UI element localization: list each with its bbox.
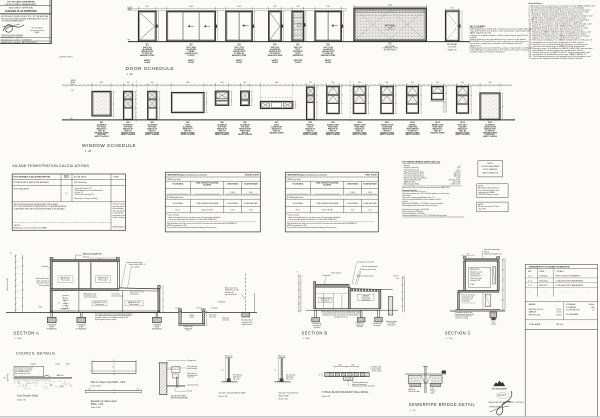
- svg-text:19.60: 19.60: [231, 192, 235, 194]
- svg-text:DOORS: DOORS: [448, 47, 456, 49]
- svg-text:SPEC BY: SPEC BY: [356, 130, 364, 132]
- svg-text:DATE: DATE: [540, 270, 545, 273]
- svg-text:Block Wall: Block Wall: [279, 395, 290, 397]
- svg-text:TOP HUNG: TOP HUNG: [124, 127, 133, 129]
- svg-text:Scale 1:20: Scale 1:20: [322, 396, 330, 398]
- svg-text:certified under or member of t: certified under or member of thereof: [470, 51, 506, 54]
- svg-text:2.1: 2.1: [274, 369, 276, 371]
- svg-text:Scale 1:50: Scale 1:50: [17, 400, 26, 402]
- svg-text:W10: W10: [357, 122, 362, 124]
- svg-text:RECEIVED DEVELOPMENT CONTROL: RECEIVED DEVELOPMENT CONTROL: [489, 402, 526, 404]
- svg-text:GLASS: GLASS: [236, 61, 243, 64]
- svg-text:GLASS: GLASS: [295, 61, 302, 64]
- svg-text:— — — — — —: — — — — — —: [558, 291, 570, 293]
- svg-text:ENV: No Building: ENV: No Building: [74, 182, 87, 184]
- svg-text:WINDOW SCHEDULE: WINDOW SCHEDULE: [82, 143, 136, 148]
- svg-text:DOOR: DOOR: [388, 28, 394, 30]
- svg-text:SPEC BY: SPEC BY: [459, 130, 467, 132]
- svg-text:HARDWOOD: HARDWOOD: [293, 54, 304, 57]
- svg-text:Sunningdale: Sunningdale: [492, 387, 508, 391]
- svg-text:pad: pad: [492, 322, 495, 324]
- svg-text:Plan of rollover kerb DWG - CK: Plan of rollover kerb DWG - CK3: [91, 381, 126, 384]
- svg-text:FIRST FLOOR: FIRST FLOOR: [365, 174, 377, 176]
- svg-text:CONCRETE: CONCRETE: [153, 325, 162, 327]
- svg-text:ceiling fixing: ceiling fixing: [130, 294, 138, 296]
- svg-text:150: 150: [4, 377, 7, 379]
- svg-text:OTHER: OTHER: [113, 177, 120, 179]
- svg-text:tempered or toughened glass sh: tempered or toughened glass shall be sho…: [470, 34, 529, 37]
- svg-text:Beacon line: Beacon line: [278, 355, 286, 357]
- svg-text:Min 750 found: Min 750 found: [233, 375, 242, 377]
- svg-text:TOP HUNG: TOP HUNG: [241, 127, 250, 129]
- svg-text:— —: — —: [528, 291, 532, 293]
- svg-text:BEDROOM 3: BEDROOM 3: [98, 277, 108, 279]
- svg-text:FENESTRATION (glass and frame: FENESTRATION (glass and frame per room/z…: [287, 173, 327, 176]
- svg-text:DETAILS: DETAILS: [557, 270, 565, 273]
- svg-text:gulley conn: gulley conn: [356, 324, 364, 326]
- svg-text:90: 90: [319, 374, 321, 376]
- svg-text:11.41: 11.41: [249, 210, 253, 212]
- svg-text:450: 450: [151, 82, 154, 84]
- svg-text:SPEC BY: SPEC BY: [329, 130, 337, 132]
- svg-text:04/11/2021: 04/11/2021: [539, 285, 548, 287]
- svg-text:SPEC BY: SPEC BY: [434, 130, 442, 132]
- svg-text:190 block walls: 190 block walls: [372, 366, 382, 368]
- svg-text:TOP HUNG: TOP HUNG: [148, 127, 157, 129]
- svg-text:above FFL.: above FFL.: [478, 208, 487, 210]
- svg-text:900: 900: [489, 82, 492, 84]
- svg-text:271m²: 271m²: [557, 308, 562, 311]
- svg-text:EXTERIOR WALLS (NBR) (PERF. AS: EXTERIOR WALLS (NBR) (PERF. ASSUMED): [14, 181, 50, 184]
- svg-text:12/10/2021: 12/10/2021: [539, 280, 548, 282]
- svg-text:MANUFACTURER: MANUFACTURER: [321, 54, 336, 57]
- svg-text:2700: 2700: [326, 6, 330, 8]
- svg-text:900: 900: [100, 82, 103, 84]
- svg-text:BUILDING PLAN APPROVED: BUILDING PLAN APPROVED: [5, 10, 37, 13]
- svg-text:ALPINE TINTS: ALPINE TINTS: [60, 56, 74, 59]
- svg-text:450: 450: [127, 82, 130, 84]
- svg-text:1 : 20: 1 : 20: [410, 410, 416, 412]
- svg-text:WINDOW TO: WINDOW TO: [272, 128, 283, 130]
- svg-text:GLASS: GLASS: [325, 61, 332, 64]
- svg-text:50x50 conc slabs: 50x50 conc slabs: [408, 391, 420, 393]
- svg-text:GROUND FLOOR: GROUND FLOOR: [93, 302, 106, 304]
- svg-text:SPEC BY: SPEC BY: [124, 130, 132, 132]
- svg-text:WINDOW TO: WINDOW TO: [123, 128, 134, 130]
- svg-text:40 cube: 40 cube: [175, 307, 180, 309]
- svg-text:.27: .27: [592, 309, 594, 311]
- svg-text:100Ø uPVC @ 1:60: 100Ø uPVC @ 1:60: [225, 290, 239, 292]
- svg-text:WINDOW TO: WINDOW TO: [217, 128, 228, 130]
- svg-text:Ceiling: 40 R-value 1.35: Ceiling: 40 R-value 1.35: [75, 188, 92, 190]
- svg-text:SECTION C: SECTION C: [445, 331, 471, 336]
- svg-text:Section Through Pre: Section Through Pre: [279, 392, 300, 395]
- svg-text:FENESTRATION (glass and frame: FENESTRATION (glass and frame per room/z…: [167, 173, 207, 176]
- svg-text:8.5: 8.5: [10, 252, 12, 254]
- svg-text:1500 deep: 1500 deep: [222, 318, 229, 320]
- svg-text:FLOOR FACTOR: FLOOR FACTOR: [566, 308, 580, 311]
- svg-text:Paving: Paving: [187, 390, 192, 392]
- svg-text:WINDOW TO: WINDOW TO: [433, 128, 444, 130]
- svg-text:2.7: 2.7: [65, 193, 67, 195]
- svg-text:600: 600: [358, 82, 361, 84]
- svg-text:DOOR: DOOR: [127, 7, 133, 9]
- svg-text:Paving: Paving: [484, 251, 489, 253]
- svg-text:CONCRETE: CONCRETE: [47, 325, 56, 327]
- svg-text:all openings: all openings: [462, 301, 470, 303]
- svg-text:high nbs block: high nbs block: [242, 324, 252, 326]
- svg-text:9.50: 9.50: [351, 210, 354, 212]
- svg-text:BELOW: BELOW: [242, 132, 249, 134]
- svg-text:GROUND FLOOR: GROUND FLOOR: [529, 309, 544, 311]
- svg-text:• Annual target (kWh): • Annual target (kWh): [403, 183, 420, 186]
- svg-text:FIXED: FIXED: [274, 125, 280, 127]
- svg-text:SPEC BY: SPEC BY: [307, 130, 315, 132]
- svg-text:24 Jul 2024: 24 Jul 2024: [31, 27, 43, 29]
- svg-text:SPEC BY: SPEC BY: [383, 130, 391, 132]
- svg-text:Scale 1:100: Scale 1:100: [279, 398, 288, 400]
- svg-text:R-value: 3.7: R-value: 3.7: [75, 192, 84, 194]
- svg-text:Application number: BP/2024/0: Application number: BP/2024/00157: [2, 41, 38, 44]
- svg-text:ROOF INSULATION: ROOF INSULATION: [14, 188, 30, 191]
- svg-text:WINDOW TO: WINDOW TO: [97, 128, 108, 130]
- svg-text:WINDOW TO: WINDOW TO: [183, 128, 194, 130]
- svg-text:ROOF ASSEMBLY R-VALUE (PRESCRI: ROOF ASSEMBLY R-VALUE (PRESCRIPTIVE): [14, 176, 51, 179]
- svg-text:STEEL: STEEL: [189, 315, 194, 317]
- svg-text:600: 600: [461, 82, 464, 84]
- svg-text:BEDROOM 2: BEDROOM 2: [61, 277, 71, 279]
- svg-text:Roof line: Roof line: [393, 276, 399, 278]
- svg-text:Road: Road: [66, 363, 70, 365]
- svg-text:TOTAL AREA: TOTAL AREA: [529, 323, 541, 326]
- svg-text:24 OCT: 24 OCT: [498, 395, 507, 397]
- svg-text:1 : 20: 1 : 20: [127, 73, 134, 76]
- svg-text:4500: 4500: [189, 6, 193, 8]
- svg-text:TO SPEC BY: TO SPEC BY: [408, 130, 419, 132]
- svg-text:DEVELOPMENT MANAGEMENT: DEVELOPMENT MANAGEMENT: [5, 3, 37, 6]
- svg-text:1 : 20: 1 : 20: [85, 150, 92, 153]
- svg-text:Scale 1:100: Scale 1:100: [91, 407, 101, 409]
- svg-text:Kerb Section Detail: Kerb Section Detail: [17, 395, 38, 398]
- svg-text:83.0m²: 83.0m²: [557, 313, 563, 316]
- svg-text:Section Through Block Wall: Section Through Block Wall: [219, 392, 246, 395]
- svg-text:1464m²: 1464m²: [589, 303, 595, 306]
- svg-text:450: 450: [244, 82, 247, 84]
- svg-text:STRIP: STRIP: [155, 327, 160, 329]
- svg-text:NOTE:: NOTE:: [478, 185, 484, 187]
- svg-text:1 : 100: 1 : 100: [446, 338, 453, 340]
- svg-text:SPEC BY: SPEC BY: [273, 130, 281, 132]
- svg-text:WINDOW TO: WINDOW TO: [355, 128, 366, 130]
- svg-text:FIXED: FIXED: [185, 125, 191, 127]
- svg-text:R 300: R 300: [470, 284, 474, 286]
- svg-text:CONCRETE: CONCRETE: [77, 325, 86, 327]
- svg-text:27. may not be reproduced with: 27. may not be reproduced without writte…: [529, 57, 584, 60]
- svg-text:21/06/2021: 21/06/2021: [539, 276, 548, 278]
- svg-text:STRIP: STRIP: [49, 327, 54, 329]
- svg-text:LIVING ROOM: LIVING ROOM: [320, 299, 331, 301]
- svg-text:WNDW: WNDW: [71, 80, 77, 82]
- svg-text:sealed vs leakage.: sealed vs leakage.: [113, 217, 126, 219]
- svg-text:— — —: — — —: [541, 291, 547, 293]
- svg-text:WINDOW TO: WINDOW TO: [382, 128, 393, 130]
- svg-text:7.41: 7.41: [368, 210, 371, 212]
- svg-text:1 : 100: 1 : 100: [303, 338, 310, 340]
- svg-text:Beacon line: Beacon line: [225, 355, 233, 357]
- svg-text:Munic sewer conn: Munic sewer conn: [225, 288, 237, 290]
- svg-text:4.48: 4.48: [368, 192, 371, 194]
- svg-text:CLERESTORY: CLERESTORY: [271, 127, 283, 129]
- svg-text:2400: 2400: [339, 365, 342, 367]
- svg-text:W12: W12: [410, 122, 415, 124]
- svg-text:W11: W11: [385, 122, 390, 124]
- svg-text:COVERAGE: COVERAGE: [566, 306, 577, 309]
- svg-text:600: 600: [386, 82, 389, 84]
- svg-text:900: 900: [146, 6, 149, 8]
- svg-text:MUNICIPALITY APPROVAL: MUNICIPALITY APPROVAL: [9, 7, 34, 10]
- svg-text:SECTION A: SECTION A: [13, 330, 39, 335]
- svg-text:— —: — —: [586, 291, 590, 293]
- svg-text:W15: W15: [488, 122, 493, 124]
- svg-text:TOP HUNG: TOP HUNG: [218, 127, 227, 129]
- svg-text:1 : 100: 1 : 100: [14, 338, 21, 340]
- svg-text:0 1.0: 0 1.0: [528, 276, 532, 278]
- svg-text:4.48: 4.48: [249, 192, 252, 194]
- svg-text:GLASS: GLASS: [144, 61, 151, 64]
- svg-text:Paving falls: Paving falls: [323, 275, 331, 277]
- svg-text:FIRST FLOOR: FIRST FLOOR: [529, 314, 541, 316]
- svg-text:W. level: W. level: [197, 307, 203, 309]
- svg-text:Scale 1:100: Scale 1:100: [91, 386, 101, 388]
- svg-text:19.60: 19.60: [351, 192, 355, 194]
- svg-text:SEWERPIPE BRIDGE DETAIL: SEWERPIPE BRIDGE DETAIL: [409, 402, 476, 407]
- svg-text:GROUND FLOOR: GROUND FLOOR: [245, 174, 260, 176]
- svg-text:MANUFACTURER: MANUFACTURER: [232, 54, 247, 57]
- svg-text:2700: 2700: [237, 6, 241, 8]
- svg-text:NOTE:: NOTE:: [478, 204, 484, 206]
- svg-text:600: 600: [221, 82, 224, 84]
- svg-text:0 1.1: 0 1.1: [528, 280, 532, 282]
- svg-text:SPEC BY: SPEC BY: [218, 130, 226, 132]
- svg-text:Demand Controls:: Demand Controls:: [402, 189, 418, 192]
- svg-text:LOW-E REQUIRED: LOW-E REQUIRED: [481, 166, 500, 168]
- svg-text:SLIDING DOOR: SLIDING DOOR: [484, 127, 497, 129]
- svg-text:510: 510: [309, 82, 312, 84]
- svg-text:FFL: FFL: [71, 90, 74, 92]
- svg-text:1510: 1510: [466, 253, 469, 255]
- svg-text:1,368 / 2,737: 1,368 / 2,737: [450, 184, 460, 186]
- svg-text:1500: 1500: [275, 82, 279, 84]
- svg-text:FFL 0.00: FFL 0.00: [60, 308, 66, 310]
- svg-text:DWG - CK6: DWG - CK6: [91, 403, 104, 406]
- svg-text:LOCAL AUTHORITY AMENDMENT: LOCAL AUTHORITY AMENDMENT: [556, 284, 585, 287]
- svg-text:FB: FB: [71, 118, 73, 120]
- svg-text:AREAS:: AREAS:: [529, 303, 537, 306]
- svg-text:Scale 1:100: Scale 1:100: [219, 396, 228, 398]
- svg-text:900: 900: [273, 6, 276, 8]
- svg-text:1.8: 1.8: [222, 369, 224, 371]
- svg-text:0 1.2: 0 1.2: [528, 285, 532, 287]
- svg-text:600: 600: [436, 82, 439, 84]
- svg-text:2400: 2400: [351, 365, 354, 367]
- svg-text:GARAGE: GARAGE: [529, 311, 537, 314]
- svg-text:5000: 5000: [388, 4, 392, 6]
- svg-text:Registration number: 7046953: Registration number: 70469532: [2, 38, 32, 41]
- svg-text:HOT WATER DEMAND (SANS 10400-X: HOT WATER DEMAND (SANS 10400-XA): [402, 161, 440, 164]
- svg-text:3.1: 3.1: [297, 272, 299, 274]
- svg-text:NGL: NGL: [39, 307, 42, 309]
- svg-text:TO SPEC BY: TO SPEC BY: [485, 130, 496, 132]
- svg-text:SITE AREA: SITE AREA: [566, 303, 576, 306]
- svg-text:WINDOW TO: WINDOW TO: [458, 128, 469, 130]
- svg-text:760: 760: [296, 6, 299, 8]
- svg-text:Waterproofing@R wall: Waterproofing@R wall: [83, 253, 102, 256]
- svg-text:SECTION B: SECTION B: [302, 330, 328, 335]
- svg-text:1800: 1800: [186, 82, 190, 84]
- svg-text:WINDOW TO: WINDOW TO: [147, 128, 158, 130]
- svg-text:SPEC BY: SPEC BY: [184, 130, 192, 132]
- svg-text:WINDOW UNIT: WINDOW UNIT: [484, 128, 495, 130]
- svg-text:BEDROOM 1: BEDROOM 1: [470, 269, 479, 271]
- svg-text:WINDOW TO: WINDOW TO: [305, 128, 316, 130]
- svg-text:FIRST COUNCIL SUBMISSION: FIRST COUNCIL SUBMISSION: [556, 276, 582, 278]
- svg-text:TYPICAL BLOCK BOUNDARY WALL DE: TYPICAL BLOCK BOUNDARY WALL DETAIL: [322, 391, 369, 394]
- svg-text:SPEC BY: SPEC BY: [149, 130, 157, 132]
- svg-text:FFL: FFL: [128, 40, 131, 42]
- svg-text:WINDOW TO: WINDOW TO: [328, 128, 339, 130]
- svg-text:COUNCIL DETAILS: COUNCIL DETAILS: [16, 352, 55, 356]
- svg-text:SEE SCHEDULE: SEE SCHEDULE: [482, 172, 499, 174]
- svg-text:TOP HUNG: TOP HUNG: [97, 127, 106, 129]
- svg-text:600: 600: [332, 82, 335, 84]
- svg-text:SPEC BY: SPEC BY: [98, 130, 106, 132]
- svg-text:813: 813: [451, 8, 454, 10]
- svg-text:LOW LEVEL: LOW LEVEL: [485, 134, 495, 136]
- svg-text:Paving: Paving: [56, 363, 61, 365]
- svg-text:WINDOW WITH: WINDOW WITH: [239, 128, 252, 130]
- svg-text:STRIP: STRIP: [79, 327, 84, 329]
- svg-text:MANUFACTURER: MANUFACTURER: [140, 54, 155, 57]
- svg-text:AMENDMENTS TO PLANNING SUBMISS: AMENDMENTS TO PLANNING SUBMISSION: [529, 265, 570, 268]
- svg-text:36.2m²: 36.2m²: [557, 311, 563, 314]
- svg-text:FOR GLAZING: FOR GLAZING: [483, 168, 497, 171]
- svg-text:2100: 2100: [71, 84, 75, 86]
- svg-text:390.2m²: 390.2m²: [556, 323, 563, 326]
- svg-text:NOTE:: NOTE:: [487, 163, 494, 165]
- svg-text:walls where shown: walls where shown: [36, 283, 49, 285]
- svg-text:SG DIAGRAMS: SG DIAGRAMS: [566, 313, 579, 316]
- svg-text:OVER FIXED: OVER FIXED: [408, 127, 419, 129]
- svg-text:W14: W14: [460, 121, 465, 124]
- svg-text:MANUFACTURER: MANUFACTURER: [268, 54, 283, 57]
- svg-text:POOL: POOL: [190, 317, 194, 319]
- svg-text:BY SPECIALIST: BY SPECIALIST: [384, 49, 397, 52]
- svg-text:GLASS: GLASS: [272, 61, 279, 64]
- svg-text:GLASS: GLASS: [188, 61, 195, 64]
- svg-text:2.4: 2.4: [58, 302, 60, 304]
- svg-text:DOOR SCHEDULE: DOOR SCHEDULE: [126, 66, 175, 72]
- svg-text:XA AND FENESTRATION CALCULATIO: XA AND FENESTRATION CALCULATIONS: [12, 164, 89, 168]
- svg-text:Min 750 found: Min 750 found: [286, 375, 295, 377]
- svg-text:19.50: 19.50: [231, 210, 235, 212]
- svg-text:LOCAL AUTHORITY AMENDMENT: LOCAL AUTHORITY AMENDMENT: [556, 279, 585, 282]
- svg-text:TO SPEC: TO SPEC: [187, 55, 195, 57]
- svg-text:w/ piers 390sq: w/ piers 390sq: [372, 369, 381, 371]
- svg-text:W13: W13: [435, 122, 440, 124]
- svg-text:OBSCURE: OBSCURE: [97, 134, 106, 136]
- svg-text:600: 600: [411, 82, 414, 84]
